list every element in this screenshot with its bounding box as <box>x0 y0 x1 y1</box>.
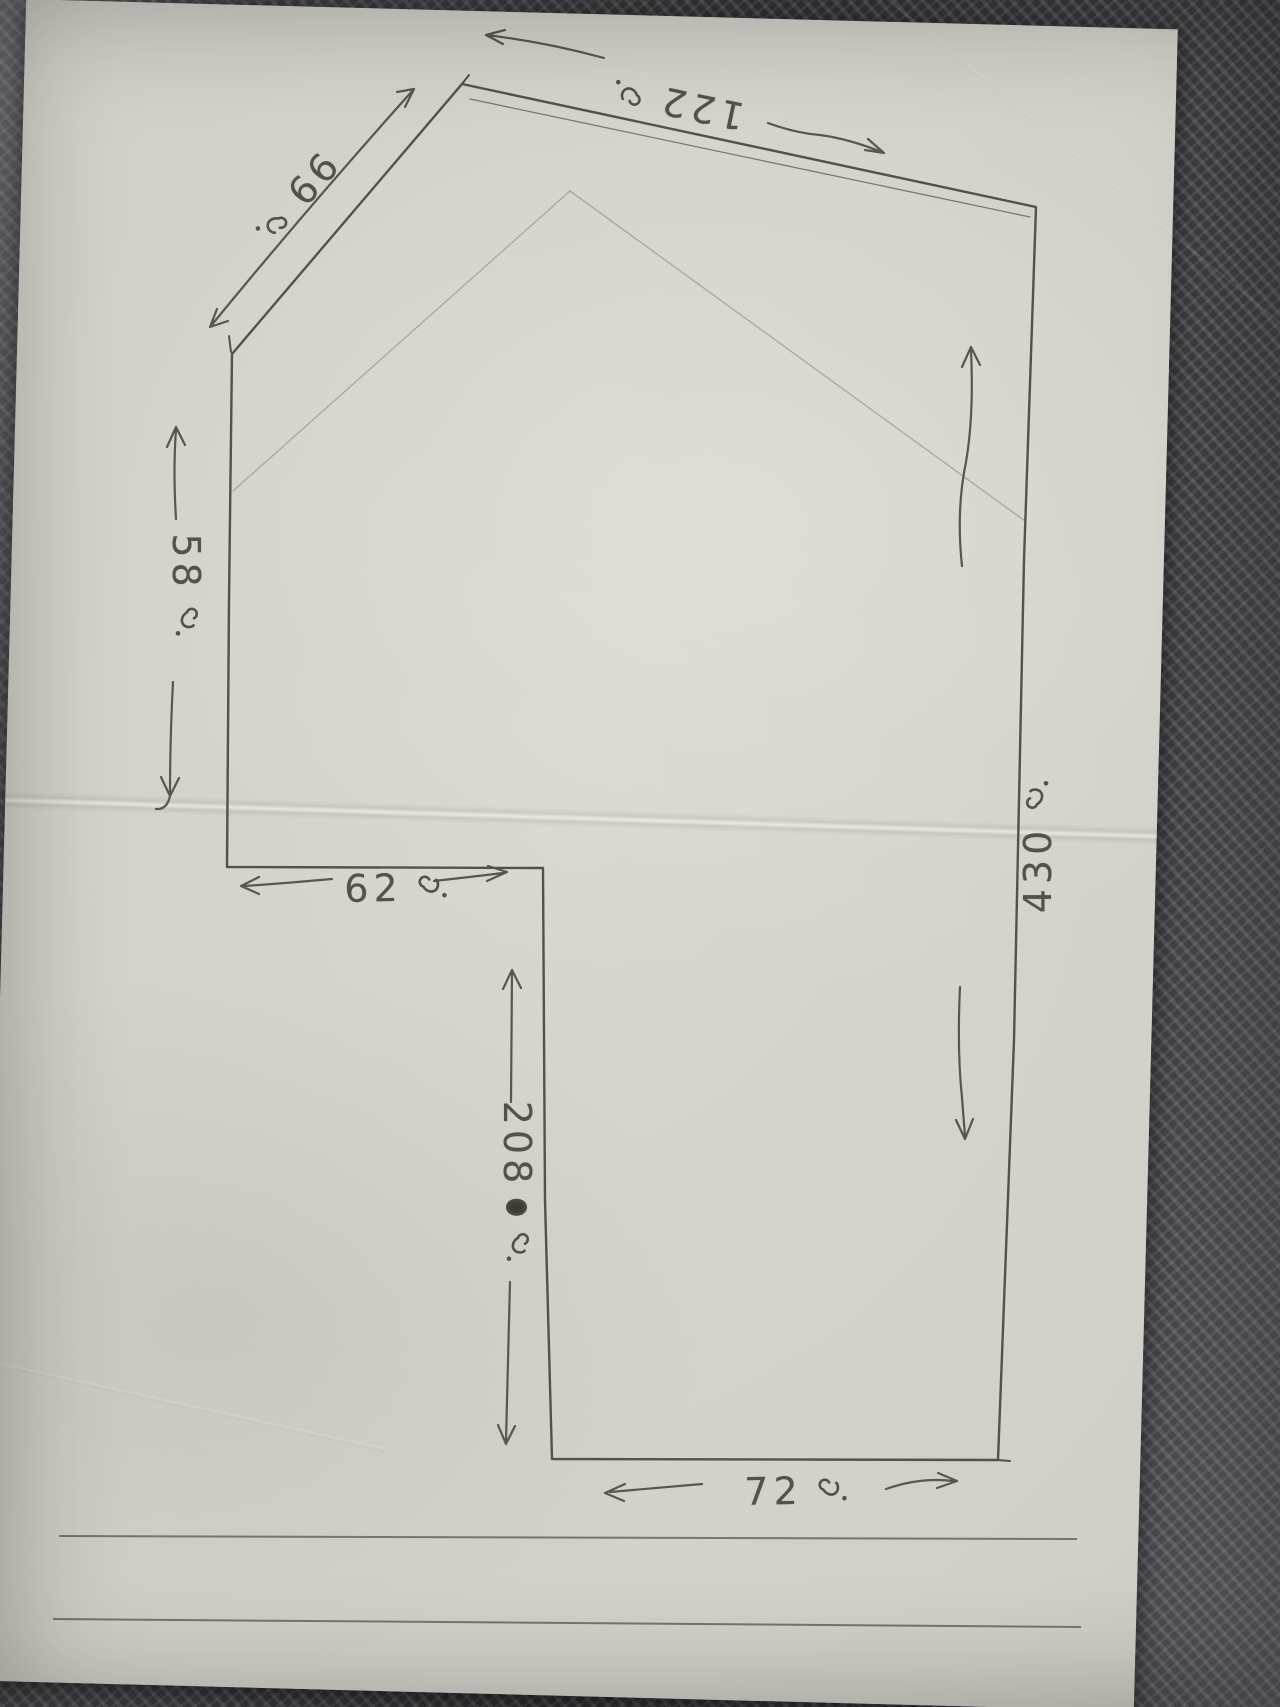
plot-outline-group <box>227 75 1036 1461</box>
dim-arrow-58-up <box>167 427 185 519</box>
wa-unit-icon <box>609 73 653 112</box>
dim-arrow-72-right <box>886 1473 957 1489</box>
plot-outline <box>227 84 1036 1460</box>
corner-tick-bottom-right <box>998 1460 1010 1461</box>
dim-label-left: 58 <box>164 533 208 638</box>
dim-label-notch: 62 <box>344 865 450 911</box>
wa-unit-icon <box>1022 779 1054 817</box>
dim-value: 208 <box>495 1101 539 1189</box>
construction-line-right <box>570 191 1025 521</box>
dim-value: 62 <box>344 866 403 911</box>
dim-label-inner: 208 <box>495 1101 539 1264</box>
wa-unit-icon <box>411 871 450 904</box>
corner-tick-apex <box>462 75 469 84</box>
ruled-line-2 <box>53 1619 1081 1627</box>
dim-arrow-58-down <box>156 682 179 809</box>
dimension-arrows <box>156 30 980 1501</box>
wa-unit-icon <box>170 601 202 639</box>
dim-arrow-122-right <box>768 123 884 153</box>
dim-arrow-72-left <box>605 1484 702 1501</box>
dim-value: 430 <box>1016 826 1060 914</box>
corner-tick-left <box>229 336 231 352</box>
construction-lines <box>233 191 1025 521</box>
dim-arrow-122-left <box>486 30 604 58</box>
wa-unit-icon <box>811 1474 850 1507</box>
dim-arrow-62-left <box>241 877 332 894</box>
dim-value: 58 <box>164 533 208 591</box>
dim-arrow-430-down <box>956 987 973 1139</box>
dim-label-bottom: 72 <box>744 1468 850 1514</box>
wa-unit-icon <box>501 1225 533 1263</box>
plot-outline-doubled-top-edge <box>470 99 1030 217</box>
scribbled-out-digit <box>507 1198 528 1215</box>
dim-label-right: 430 <box>1016 779 1060 914</box>
dim-value: 72 <box>744 1469 803 1514</box>
dim-arrow-430-up <box>960 347 980 566</box>
ruled-line-1 <box>59 1536 1077 1539</box>
sketch-drawing <box>0 0 1280 1707</box>
photo-stage: 99 122 58 62 208 430 72 <box>0 0 1280 1707</box>
ruled-lines <box>53 1536 1081 1627</box>
